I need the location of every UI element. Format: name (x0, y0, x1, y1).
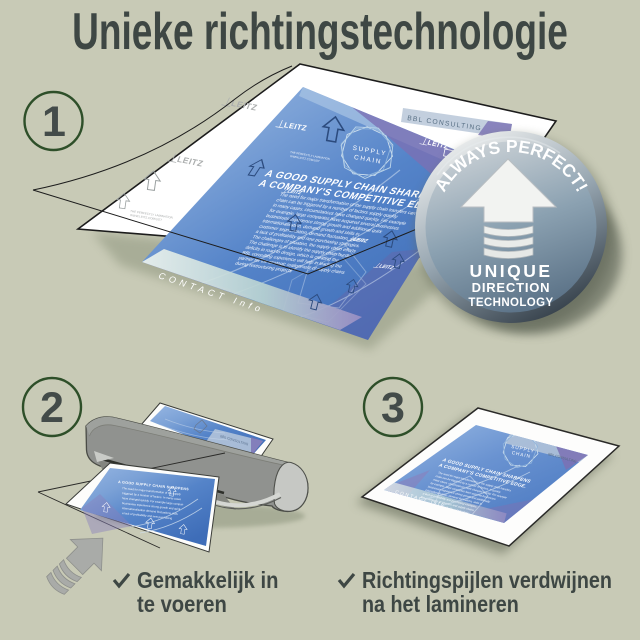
svg-text:DIRECTION: DIRECTION (472, 280, 551, 295)
svg-text:TECHNOLOGY: TECHNOLOGY (468, 297, 553, 309)
svg-text:te voeren: te voeren (137, 591, 227, 618)
svg-text:Unieke richtingstechnologie: Unieke richtingstechnologie (72, 2, 568, 61)
svg-text:Gemakkelijk in: Gemakkelijk in (137, 567, 278, 594)
svg-text:UNIQUE: UNIQUE (469, 261, 552, 281)
svg-text:1: 1 (42, 98, 66, 146)
svg-text:3: 3 (381, 384, 405, 432)
svg-text:2: 2 (40, 384, 64, 432)
svg-text:na het lamineren: na het lamineren (362, 590, 519, 617)
